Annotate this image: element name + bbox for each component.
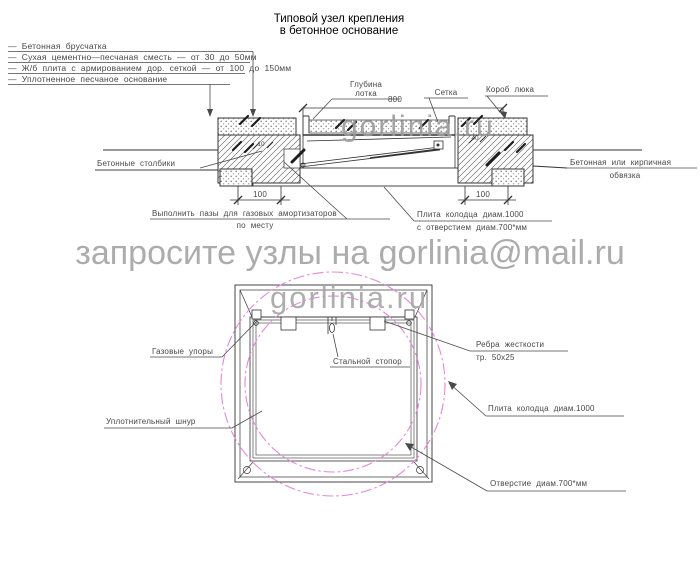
label-well-slab-line2: с отверстием диам.700*мм [417, 223, 527, 232]
label-mesh: Сетка [424, 88, 468, 97]
blueprint-page: Типовой узел крепления в бетонное основа… [0, 0, 700, 568]
label-plan-opening: Отверстие диам.700*мм [490, 479, 587, 488]
dim-100-right: 100 [461, 190, 505, 199]
section-ground-lines [95, 150, 642, 170]
drawing-title-line1: Типовой узел крепления [226, 13, 452, 25]
label-steel-stopper: Стальной стопор [333, 357, 402, 366]
legend-item-sand-base: — Уплотненное песчаное основание [8, 75, 167, 84]
drawing-title: Типовой узел крепления в бетонное основа… [226, 13, 452, 37]
label-edging-line1: Бетонная или кирпичная [570, 158, 671, 167]
label-plan-well-slab: Плита колодца диам.1000 [488, 404, 595, 413]
dim-10: 10 [252, 140, 270, 149]
dim-800: 800 [371, 95, 419, 104]
label-edging-line2: обвязка [585, 171, 665, 180]
label-well-slab-line1: Плита колодца диам.1000 [417, 210, 524, 219]
legend-item-pavers: — Бетонная брусчатка [8, 42, 107, 51]
legend-item-rc-slab: — Ж/б плита с армированием дор. сеткой —… [8, 64, 291, 73]
drawing-title-line2: в бетонное основание [226, 25, 452, 37]
watermark-site-plan: gorlinia.ru [270, 280, 428, 316]
watermark-email: запросите узлы на gorlinia@mail.ru [30, 234, 670, 273]
label-concrete-posts: Бетонные столбики [97, 159, 175, 168]
label-grooves-line2: по месту [225, 221, 285, 230]
label-ribs-line2: тр. 50х25 [476, 353, 515, 362]
legend-item-sand-cement-mix: — Сухая цементно—песчаная сместь — от 30… [8, 53, 257, 62]
label-hatch-box: Короб люка [486, 85, 534, 94]
dim-100-left: 100 [238, 190, 282, 199]
label-ribs-line1: Ребра жесткости [476, 340, 544, 349]
label-sealing-cord: Уплотнительный шнур [106, 417, 196, 426]
label-gas-struts: Газовые упоры [152, 347, 213, 356]
label-grooves-line1: Выполнить пазы для газовых амортизаторов [152, 209, 337, 218]
watermark-site-section: gorlinia.ru [341, 110, 495, 144]
